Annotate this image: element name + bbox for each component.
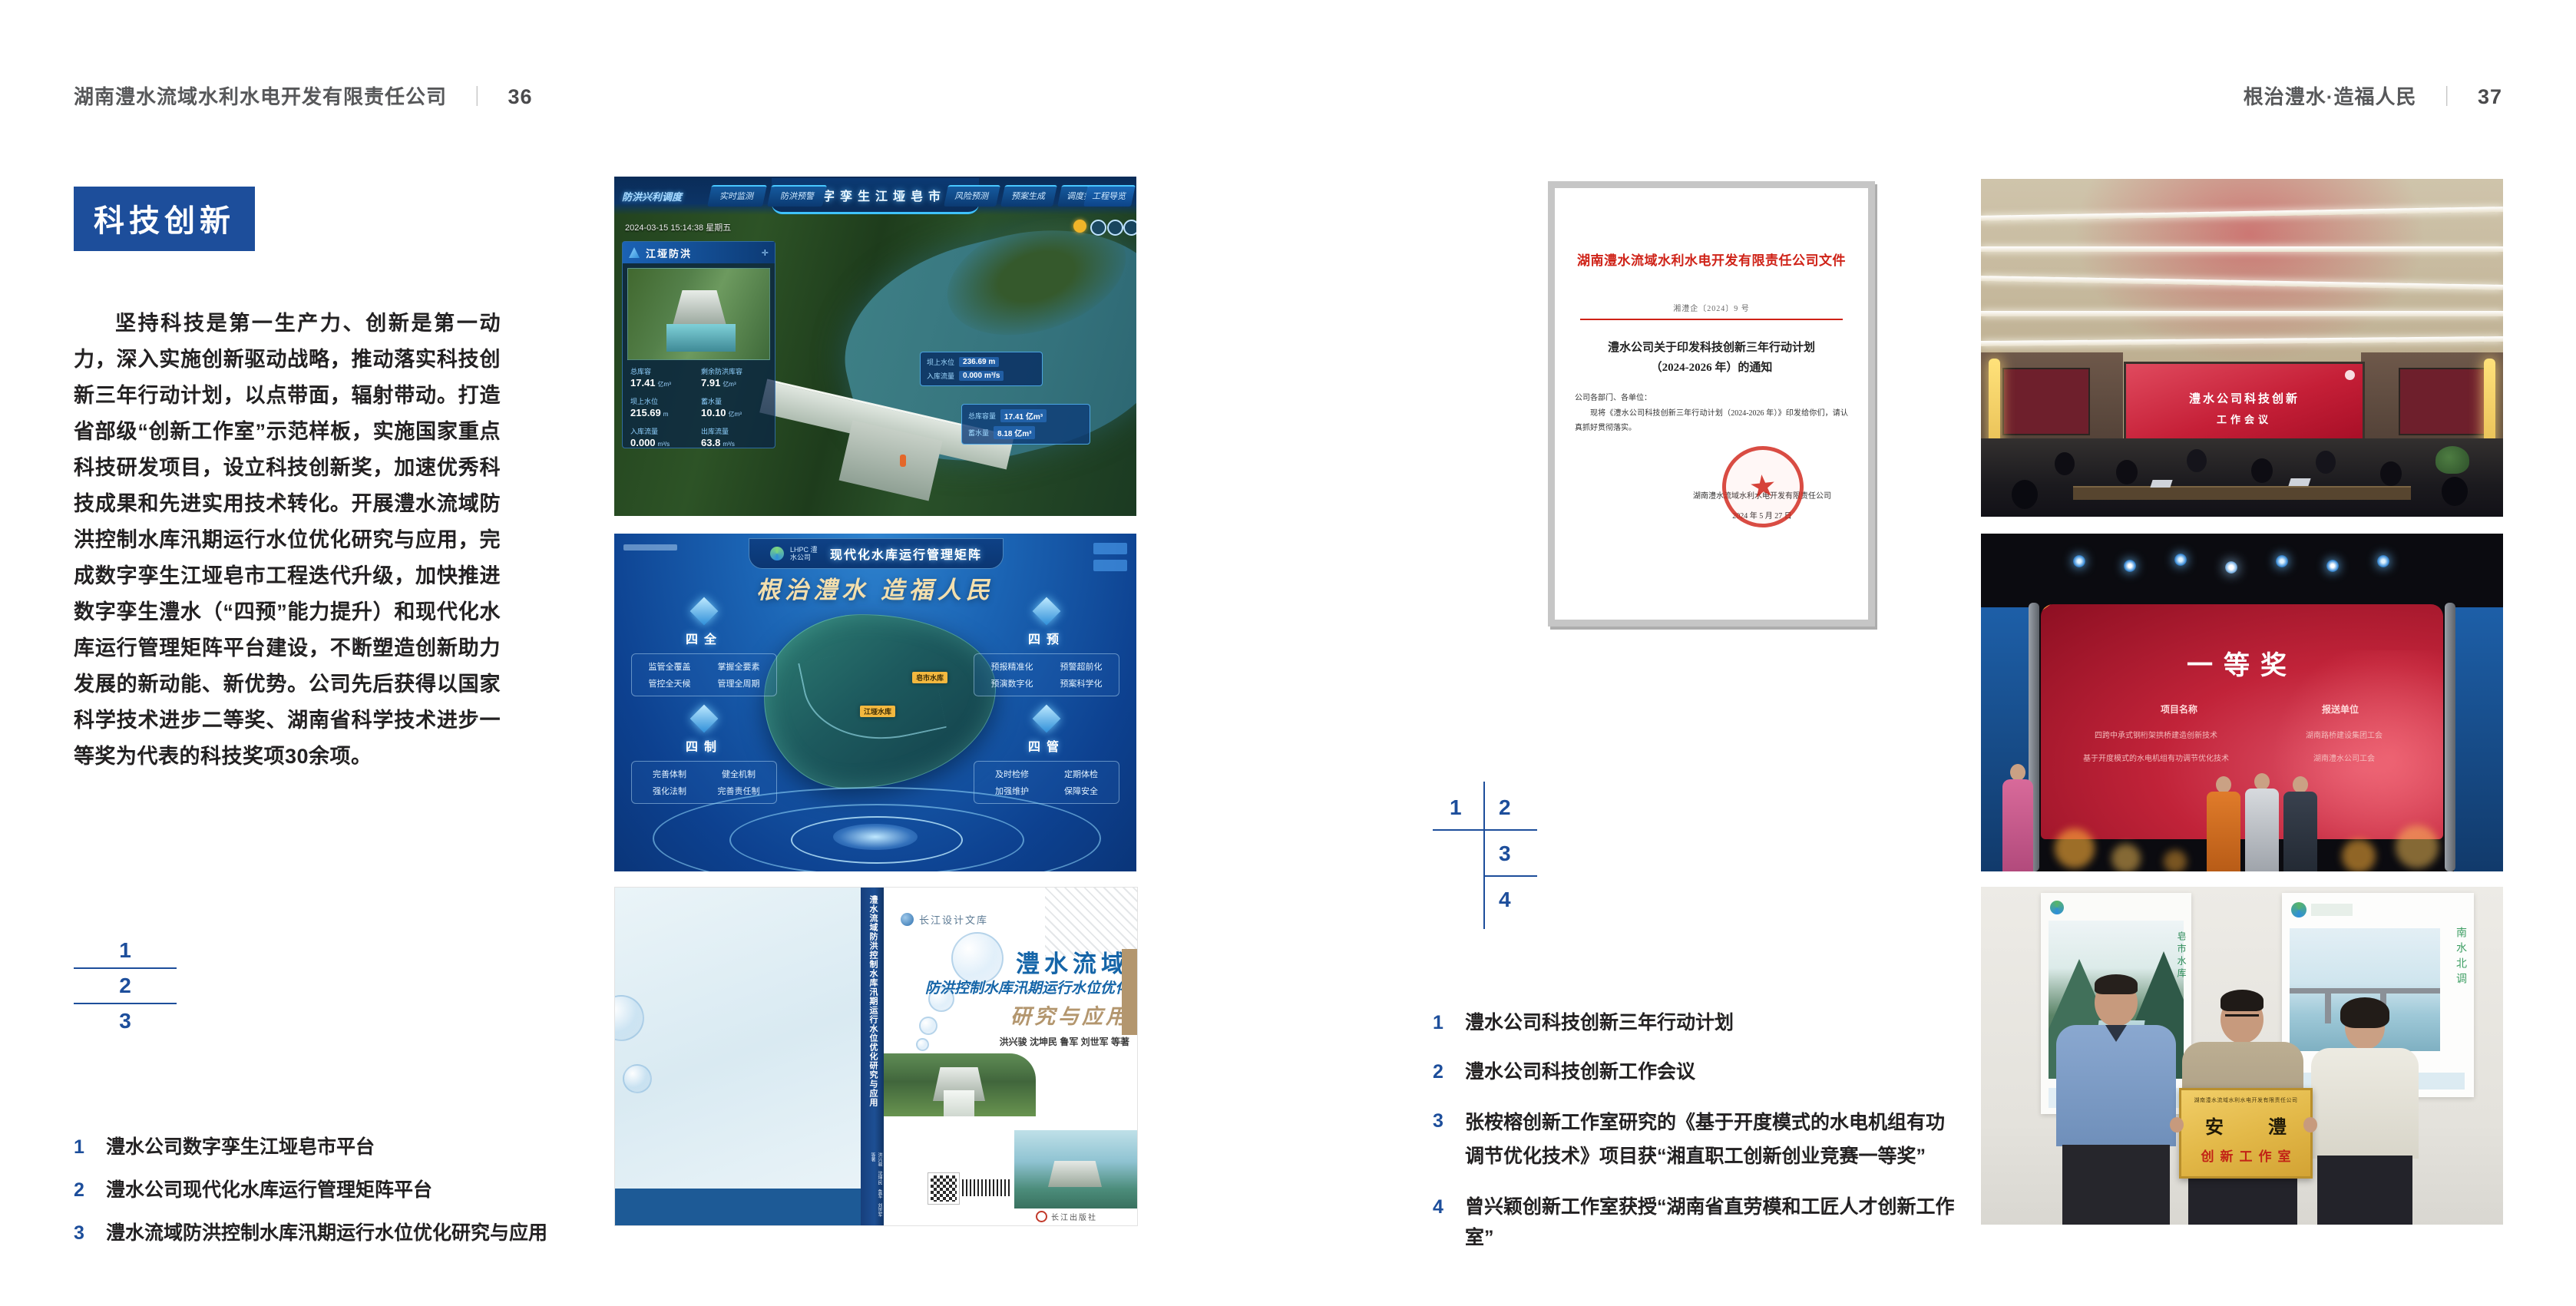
right-figure-index: 1 2 3 4 — [1433, 782, 1548, 935]
caption-text: 澧水流域防洪控制水库汛期运行水位优化研究与应用 — [106, 1218, 547, 1248]
group-label: 四制 — [631, 736, 777, 755]
spotlight — [2225, 561, 2237, 574]
plant — [2435, 446, 2469, 474]
stat-cell: 剩余防洪库容7.91亿m³ — [701, 366, 767, 390]
award-plaque: 湖南澧水流域水利水电开发有限责任公司 安 澧 创新工作室 — [2179, 1088, 2313, 1179]
left-figure-index: 1 2 3 — [74, 934, 177, 1038]
person3-shirt — [2311, 1048, 2419, 1159]
header-separator: ｜ — [467, 85, 488, 108]
person-hair — [2095, 974, 2138, 994]
card-value: 8.18 亿m³ — [994, 426, 1035, 439]
caption-item: 2 澧水公司科技创新工作会议 — [1433, 1056, 1975, 1087]
left-page-header: 湖南澧水流域水利水电开发有限责任公司 ｜ 36 — [74, 81, 533, 110]
figure-number: 4 — [1499, 888, 1511, 912]
award-col2-header: 报送单位 — [2271, 703, 2409, 716]
figure-group-photo: 皂市水库 南水北调 — [1981, 887, 2503, 1225]
figure-number: 3 — [74, 1004, 177, 1038]
caption-item: 3 张桉榕创新工作室研究的《基于开度模式的水电机组有功调节优化技术》项目获“湘直… — [1433, 1106, 1975, 1173]
card-value: 17.41 亿m³ — [1000, 409, 1047, 422]
series-logo-text: 长江设计文库 — [919, 912, 988, 927]
tooltip-row: 坝上水位236.69 m — [927, 357, 1036, 367]
stat-unit: m³/s — [723, 441, 735, 448]
laptop — [2150, 480, 2172, 488]
stat-value: 0.000 — [630, 437, 656, 448]
recipient-head — [2293, 776, 2308, 793]
audience-head — [2055, 452, 2075, 475]
document-red-title: 湖南澧水流域水利水电开发有限责任公司文件 — [1570, 250, 1852, 269]
qr-code — [928, 1173, 959, 1204]
group-item: 强化法制 — [637, 785, 703, 797]
caption-item: 2 澧水公司现代化水库运行管理矩阵平台 — [74, 1175, 611, 1205]
caption-item: 1 澧水公司数字孪生江垭皂市平台 — [74, 1132, 611, 1162]
photo2-dam — [1048, 1161, 1102, 1187]
diamond-icon — [1033, 705, 1061, 733]
stat-value: 215.69 — [630, 407, 661, 418]
light-strip — [1981, 311, 2503, 316]
stage-side-screen-right — [2454, 607, 2503, 871]
right-page-number: 37 — [2478, 85, 2502, 108]
document-page: 湖南澧水流域水利水电开发有限责任公司文件 湘澧企〔2024〕9 号 澧水公司关于… — [1555, 188, 1868, 620]
award-col1-header: 项目名称 — [2110, 703, 2248, 716]
matrix-logo-text: LHPC 澧水公司 — [790, 546, 824, 561]
matrix-group-siguan: 四管 及时检修 定期体检 加强维护 保障安全 — [974, 709, 1119, 804]
stage-frame-right — [2445, 603, 2455, 871]
book-authors: 洪兴骏 沈坤民 鲁军 刘世军 等著 — [922, 1035, 1129, 1048]
caption-text: 澧水公司科技创新三年行动计划 — [1465, 1007, 1734, 1038]
caption-item: 1 澧水公司科技创新三年行动计划 — [1433, 1007, 1975, 1038]
dashboard-tab: 工程导览 — [1083, 185, 1136, 207]
audience-head — [2187, 449, 2207, 472]
recipient-light-suit — [2245, 789, 2279, 871]
bokeh — [2164, 850, 2187, 871]
recipient-dark-suit — [2283, 792, 2317, 871]
group-item: 管理全周期 — [706, 677, 772, 689]
stat-label: 入库流量 — [630, 426, 696, 436]
matrix-header-plate: LHPC 澧水公司 现代化水库运行管理矩阵 — [749, 538, 1004, 569]
grid-hline-2 — [1483, 875, 1537, 877]
cover-photo-main — [884, 1053, 1036, 1116]
card-row: 蓄水量8.18 亿m³ — [968, 426, 1083, 439]
stat-unit: m — [663, 411, 669, 418]
caption-number: 2 — [74, 1175, 106, 1205]
diamond-icon — [1033, 597, 1061, 626]
map-side-card: 总库容量17.41 亿m³ 蓄水量8.18 亿m³ — [961, 404, 1090, 445]
dashboard-nav-label: 防洪兴利调度 — [622, 189, 706, 203]
figure-matrix-screenshot: LHPC 澧水公司 现代化水库运行管理矩阵 根治澧水 造福人民 皂市水库 江垭水… — [614, 534, 1136, 871]
stat-cell: 坝上水位215.69m — [630, 396, 696, 420]
recipient-head — [2216, 776, 2231, 793]
figure-number: 3 — [1499, 841, 1511, 866]
wall-panel-left — [2002, 368, 2090, 435]
locate-icon — [1107, 220, 1123, 236]
figure-book-cover: 澧水流域防洪控制水库汛期运行水位优化研究与应用 洪兴骏 沈坤民 鲁军 刘世军 等… — [614, 887, 1138, 1226]
person-hair — [2221, 990, 2264, 1011]
book-title-main: 澧水流域 — [976, 944, 1129, 979]
figure-award-photo: 一等奖 项目名称 报送单位 四跨中承式钢桁架拱桥建造创新技术 湖南路桥建设集团工… — [1981, 534, 2503, 871]
book-back-bottom-band — [615, 1189, 861, 1225]
spotlight — [2073, 555, 2085, 567]
bridge-pier — [2325, 993, 2331, 1023]
flag-icon — [629, 247, 640, 258]
dashboard-panel: 江垭防洪 ✛ 总库容17.41亿m³ 剩余防洪库容7.91亿m³ 坝上水位215… — [622, 241, 775, 448]
group-label: 四全 — [631, 629, 777, 647]
bokeh — [2342, 839, 2376, 871]
panel-thumbnail — [627, 268, 770, 360]
lhpc-logo-icon — [2050, 901, 2064, 914]
caption-number: 3 — [74, 1218, 106, 1248]
matrix-group-siquan: 四全 监管全覆盖 掌握全要素 管控全天候 管理全周期 — [631, 601, 777, 696]
panel-stats: 总库容17.41亿m³ 剩余防洪库容7.91亿m³ 坝上水位215.69m 蓄水… — [623, 365, 775, 451]
dashboard-tab: 防洪预警 — [769, 185, 827, 207]
ring-glow — [833, 824, 918, 850]
stat-unit: 亿m³ — [729, 411, 742, 418]
stat-unit: 亿m³ — [658, 381, 671, 388]
caption-text: 曾兴颖创新工作室获授“湖南省直劳模和工匠人才创新工作室” — [1465, 1192, 1975, 1253]
thumb-water — [666, 324, 736, 352]
award-row-org: 湖南路桥建设集团工会 — [2271, 729, 2417, 740]
cover-photo-secondary — [1014, 1130, 1137, 1208]
hand — [2303, 1117, 2317, 1132]
tooltip-row: 入库流量0.000 m³/s — [927, 371, 1036, 381]
group-panel: 监管全覆盖 掌握全要素 管控全天候 管理全周期 — [631, 653, 777, 696]
conference-table — [2073, 486, 2411, 500]
meeting-screen: 澧水公司科技创新 工作会议 — [2124, 362, 2365, 446]
menu-button — [1093, 560, 1127, 571]
group-label: 四管 — [974, 736, 1119, 755]
caption-number: 3 — [1433, 1106, 1465, 1136]
award-row-project: 基于开度模式的水电机组有功调节优化技术 — [2049, 752, 2264, 763]
barcode — [962, 1179, 1010, 1196]
dashboard-timestamp: 2024-03-15 15:14:38 星期五 — [625, 221, 731, 233]
thumb-dam — [673, 290, 726, 326]
ceiling-red-glow — [2073, 179, 2426, 363]
laptop — [2288, 478, 2310, 486]
stat-cell: 出库流量63.8m³/s — [701, 426, 767, 450]
audience-head — [2116, 460, 2138, 484]
award-title: 一等奖 — [2041, 644, 2443, 682]
panel-header: 江垭防洪 ✛ — [623, 242, 775, 263]
panel-title: 江垭防洪 — [646, 246, 692, 260]
document-body: 现将《澧水公司科技创新三年行动计划（2024-2026 年）》印发给你们，请认真… — [1575, 406, 1848, 435]
group-label: 四预 — [974, 629, 1119, 647]
host-figure — [2002, 779, 2033, 871]
audience-head — [2251, 458, 2273, 483]
stat-cell: 蓄水量10.10亿m³ — [701, 396, 767, 420]
globe-icon — [901, 913, 914, 926]
award-row-project: 四跨中承式钢桁架拱桥建造创新技术 — [2056, 729, 2256, 740]
card-row: 总库容量17.41 亿m³ — [968, 409, 1083, 422]
recipient-orange — [2207, 792, 2240, 871]
tooltip-label: 坝上水位 — [927, 357, 954, 367]
caption-text: 张桉榕创新工作室研究的《基于开度模式的水电机组有功调节优化技术》项目获“湘直职工… — [1465, 1106, 1956, 1173]
grid-hline-1 — [1433, 829, 1537, 831]
plaque-subtitle: 创新工作室 — [2181, 1146, 2310, 1165]
caption-number: 4 — [1433, 1192, 1465, 1222]
card-label: 总库容量 — [968, 411, 996, 421]
spine-title: 澧水流域防洪控制水库汛期运行水位优化研究与应用 — [867, 895, 879, 1149]
poster-right-caption: 南水北调 — [2452, 927, 2468, 988]
document-subject-line1: 澧水公司关于印发科技创新三年行动计划 — [1555, 339, 1868, 355]
dashboard-tab: 风险预测 — [944, 185, 1000, 207]
figure-number: 2 — [74, 969, 177, 1003]
group-item: 监管全覆盖 — [637, 660, 703, 673]
bubble — [623, 1064, 652, 1093]
group-item: 预警超前化 — [1048, 660, 1114, 673]
screen-logo-dot — [2345, 370, 2355, 380]
left-captions: 1 澧水公司数字孪生江垭皂市平台 2 澧水公司现代化水库运行管理矩阵平台 3 澧… — [74, 1132, 611, 1248]
left-header-title: 湖南澧水流域水利水电开发有限责任公司 — [74, 85, 447, 108]
recipient-head — [2254, 773, 2270, 790]
group-item: 预演数字化 — [979, 677, 1045, 689]
figure-number: 2 — [1499, 795, 1511, 820]
dashboard-tab: 预案生成 — [1000, 185, 1057, 207]
dashboard-tab: 实时监测 — [707, 185, 767, 207]
group-item: 掌握全要素 — [706, 660, 772, 673]
person-glasses — [2349, 1022, 2380, 1032]
stat-label: 剩余防洪库容 — [701, 366, 767, 376]
stat-cell: 总库容17.41亿m³ — [630, 366, 696, 390]
card-label: 蓄水量 — [968, 428, 989, 438]
group-item: 完善体制 — [637, 768, 703, 780]
person-glasses — [2225, 1014, 2259, 1024]
move-icon: ✛ — [762, 248, 769, 258]
map-label-zaoshi: 皂市水库 — [912, 672, 947, 683]
book-title-tail: 研究与应用 — [976, 1000, 1129, 1030]
group-item: 健全机制 — [706, 768, 772, 780]
spotlight — [2174, 554, 2187, 566]
book-title-sub: 防洪控制水库汛期运行水位优化 — [922, 977, 1129, 997]
hand — [2170, 1117, 2184, 1132]
bokeh — [2055, 828, 2095, 868]
light-strip — [1981, 246, 2503, 252]
group-item: 及时检修 — [979, 768, 1045, 780]
figure-official-document: 湖南澧水流域水利水电开发有限责任公司文件 湘澧企〔2024〕9 号 澧水公司关于… — [1548, 181, 1875, 627]
meeting-screen-line2: 工作会议 — [2126, 412, 2363, 426]
poster-left-caption: 皂市水库 — [2175, 931, 2188, 980]
audience-head — [2012, 480, 2038, 509]
caption-text: 澧水公司现代化水库运行管理矩阵平台 — [106, 1175, 432, 1205]
stat-value: 63.8 — [701, 437, 720, 448]
figure-number: 1 — [1450, 795, 1462, 820]
group-item: 保障安全 — [1048, 785, 1114, 797]
person1-pants — [2062, 1145, 2170, 1225]
bridge-deck — [2290, 988, 2440, 994]
diamond-icon — [690, 597, 719, 626]
document-red-rule — [1580, 319, 1844, 320]
award-screen: 一等奖 项目名称 报送单位 四跨中承式钢桁架拱桥建造创新技术 湖南路桥建设集团工… — [2041, 604, 2443, 839]
right-captions: 1 澧水公司科技创新三年行动计划 2 澧水公司科技创新工作会议 3 张桉榕创新工… — [1433, 1007, 1975, 1253]
caption-text: 澧水公司科技创新工作会议 — [1465, 1056, 1695, 1087]
matrix-group-siyu: 四预 预报精准化 预警超前化 预演数字化 预案科学化 — [974, 601, 1119, 696]
lhpc-logo-icon — [2291, 902, 2306, 918]
stat-cell: 入库流量0.000m³/s — [630, 426, 696, 450]
publisher-seal-icon — [1036, 1211, 1047, 1222]
fullscreen-button — [1093, 543, 1127, 554]
bokeh — [2396, 825, 2439, 868]
group-item: 管控全天候 — [637, 677, 703, 689]
document-number: 湘澧企〔2024〕9 号 — [1555, 302, 1868, 313]
lhpc-logo-icon — [770, 547, 784, 560]
plaque-header: 湖南澧水流域水利水电开发有限责任公司 — [2181, 1096, 2310, 1104]
layers-icon — [1090, 220, 1106, 236]
grid-vline — [1483, 782, 1485, 929]
group-item: 预报精准化 — [979, 660, 1045, 673]
worker-figure — [900, 455, 906, 467]
stat-value: 10.10 — [701, 407, 726, 418]
bokeh — [2111, 844, 2141, 871]
document-greeting: 公司各部门、各单位： — [1575, 391, 1652, 402]
meeting-screen-line1: 澧水公司科技创新 — [2126, 390, 2363, 406]
stat-label: 坝上水位 — [630, 396, 696, 406]
caption-number: 1 — [74, 1132, 106, 1162]
figure-dashboard-screenshot: 数字孪生江垭皂市 防洪兴利调度 实时监测 洪水预报 防洪预警 防洪预警 防洪预警… — [614, 177, 1136, 516]
stat-value: 17.41 — [630, 377, 656, 388]
matrix-title: 现代化水库运行管理矩阵 — [830, 544, 982, 563]
right-header-title: 根治澧水·造福人民 — [2244, 85, 2417, 108]
tooltip-value: 0.000 m³/s — [959, 371, 1004, 381]
audience-head — [2380, 461, 2402, 486]
group-panel: 预报精准化 预警超前化 预演数字化 预案科学化 — [974, 653, 1119, 696]
photo-spillway — [944, 1090, 974, 1116]
spotlight — [2377, 555, 2389, 567]
audience-head — [2316, 451, 2336, 474]
matrix-slogan: 根治澧水 造福人民 — [614, 570, 1136, 605]
plaque-title: 安 澧 — [2181, 1112, 2310, 1139]
person1-shirt — [2056, 1025, 2176, 1146]
group-item: 定期体检 — [1048, 768, 1114, 780]
spine-authors: 洪兴骏 沈坤民 鲁军 刘世军 等著 — [869, 1152, 883, 1222]
document-subject-line2: （2024-2026 年）的通知 — [1555, 359, 1868, 375]
caption-item: 3 澧水流域防洪控制水库汛期运行水位优化研究与应用 — [74, 1218, 611, 1248]
tooltip-label: 入库流量 — [927, 371, 954, 381]
matrix-date — [623, 544, 677, 551]
diamond-icon — [690, 705, 719, 733]
cover-tan-tab — [1122, 949, 1137, 1035]
header-separator: ｜ — [2437, 85, 2458, 108]
stat-label: 出库流量 — [701, 426, 767, 436]
figure-meeting-photo: 澧水公司科技创新 工作会议 — [1981, 179, 2503, 517]
book-spine: 澧水流域防洪控制水库汛期运行水位优化研究与应用 洪兴骏 沈坤民 鲁军 刘世军 等… — [861, 888, 884, 1225]
matrix-group-sizhi: 四制 完善体制 健全机制 强化法制 完善责任制 — [631, 709, 777, 804]
help-icon — [1123, 220, 1136, 236]
body-paragraph: 坚持科技是第一生产力、创新是第一动力，深入实施创新驱动战略，推动落实科技创新三年… — [74, 306, 501, 775]
bubble — [919, 1017, 937, 1035]
map-label-jiangya: 江垭水库 — [860, 706, 895, 717]
group-item: 预案科学化 — [1048, 677, 1114, 689]
award-row-org: 湖南澧水公司工会 — [2271, 752, 2417, 763]
poster-logo-text — [2311, 904, 2353, 916]
caption-number: 1 — [1433, 1007, 1465, 1038]
spotlight — [2276, 555, 2288, 567]
section-title: 科技创新 — [74, 187, 255, 251]
stat-label: 蓄水量 — [701, 396, 767, 406]
figure-number: 1 — [74, 934, 177, 967]
series-logo-row: 长江设计文库 — [901, 912, 988, 927]
audience-head — [2442, 477, 2468, 506]
spotlight — [2124, 560, 2136, 572]
publisher-row: 长江出版社 — [1036, 1211, 1097, 1222]
stat-unit: m³/s — [658, 441, 670, 448]
caption-item: 4 曾兴颖创新工作室获授“湖南省直劳模和工匠人才创新工作室” — [1433, 1192, 1975, 1253]
tooltip-value: 236.69 m — [959, 357, 999, 367]
seal-star-icon: ★ — [1748, 470, 1778, 504]
audience-area — [1981, 438, 2503, 517]
stat-value: 7.91 — [701, 377, 720, 388]
left-page-number: 36 — [508, 85, 533, 108]
caption-text: 澧水公司数字孪生江垭皂市平台 — [106, 1132, 375, 1162]
stat-unit: 亿m³ — [723, 381, 736, 388]
host-head — [2010, 764, 2025, 781]
caption-number: 2 — [1433, 1056, 1465, 1087]
stat-label: 总库容 — [630, 366, 696, 376]
wall-panel-right — [2399, 368, 2486, 435]
right-page-header: 根治澧水·造福人民 ｜ 37 — [2244, 81, 2502, 110]
user-icon — [1073, 220, 1086, 233]
publisher-name: 长江出版社 — [1051, 1211, 1097, 1222]
map-tooltip: 坝上水位236.69 m 入库流量0.000 m³/s — [920, 352, 1043, 386]
spotlight — [2326, 560, 2339, 572]
brochure-spread: 湖南澧水流域水利水电开发有限责任公司 ｜ 36 根治澧水·造福人民 ｜ 37 科… — [0, 0, 2576, 1306]
person3-pants — [2317, 1156, 2412, 1225]
